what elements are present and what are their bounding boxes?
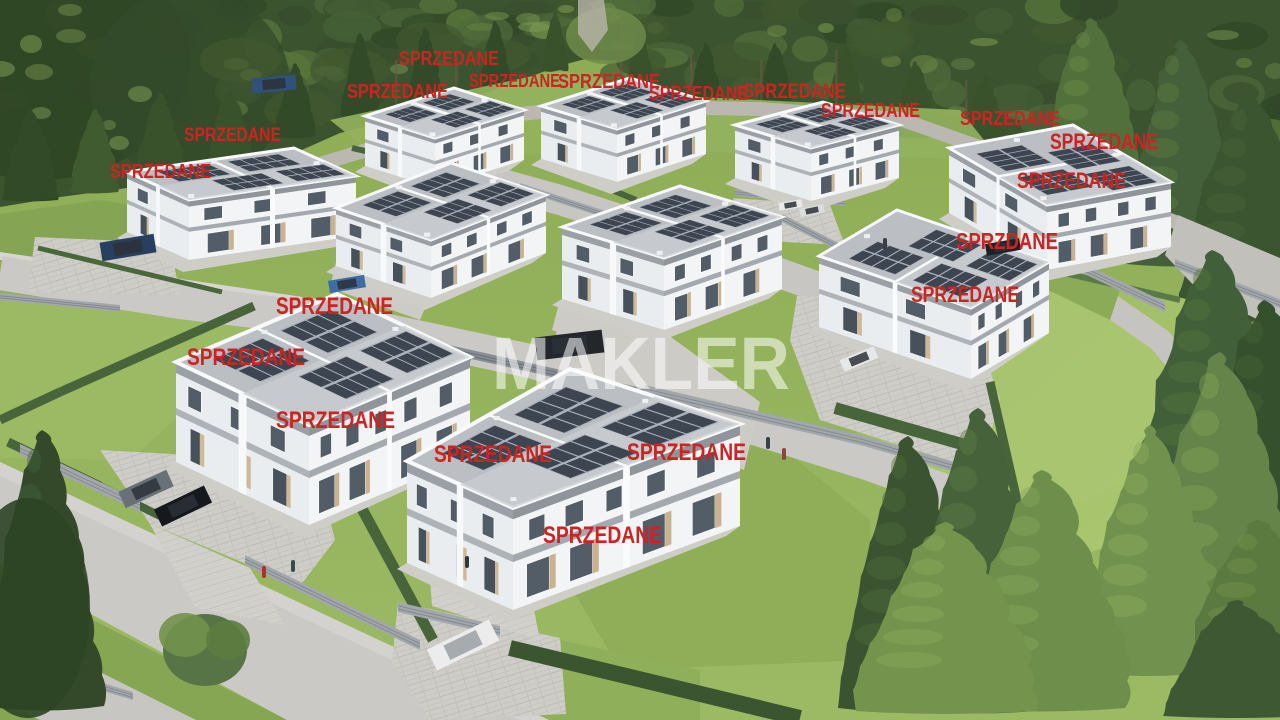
- svg-text:SPRZEDANE: SPRZEDANE: [543, 522, 662, 549]
- svg-text:SPRZEDANE: SPRZEDANE: [434, 441, 552, 468]
- svg-text:SPRZEDANE: SPRZEDANE: [911, 282, 1019, 307]
- svg-text:SPRZEDANE: SPRZEDANE: [649, 83, 748, 105]
- svg-text:SPRZEDANE: SPRZEDANE: [1050, 129, 1158, 154]
- svg-text:SPRZEDANE: SPRZEDANE: [110, 161, 211, 183]
- svg-text:SPRZEDANE: SPRZEDANE: [558, 70, 660, 93]
- svg-text:SPRZEDANE: SPRZEDANE: [184, 124, 281, 146]
- svg-text:SPRZEDANE: SPRZEDANE: [276, 294, 393, 320]
- svg-text:SPRZEDANE: SPRZEDANE: [187, 344, 305, 371]
- svg-text:SPRZEDANE: SPRZEDANE: [1017, 168, 1126, 193]
- svg-text:SPRZEDANE: SPRZEDANE: [960, 108, 1060, 130]
- svg-text:SPRZEDANE: SPRZEDANE: [399, 48, 499, 70]
- svg-text:SPRZEDANE: SPRZEDANE: [347, 81, 448, 103]
- svg-text:SPRZEDANE: SPRZEDANE: [469, 70, 560, 91]
- svg-text:SPRZEDANE: SPRZEDANE: [821, 100, 920, 122]
- svg-text:MAKLER: MAKLER: [492, 322, 790, 405]
- svg-text:SPRZEDANE: SPRZEDANE: [276, 407, 395, 434]
- svg-text:SPRZEDANE: SPRZEDANE: [627, 439, 746, 466]
- svg-text:SPRZDANE: SPRZDANE: [956, 228, 1058, 254]
